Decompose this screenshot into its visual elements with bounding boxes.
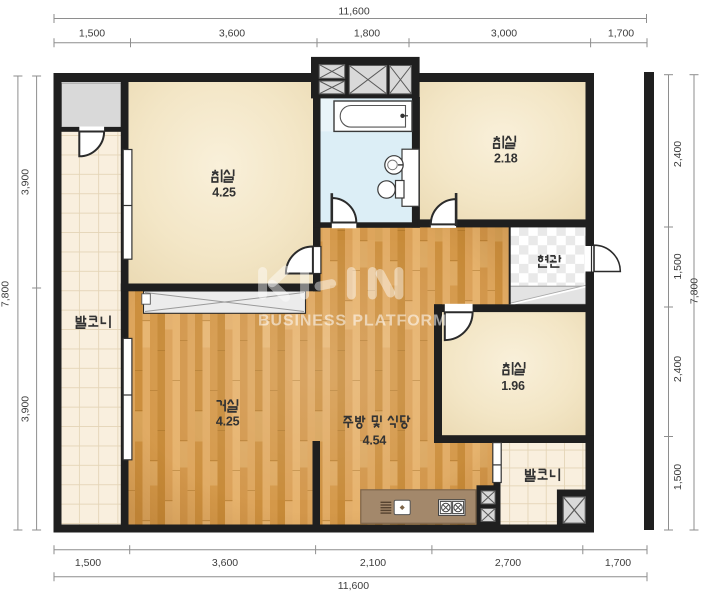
svg-text:4.25: 4.25 (212, 186, 236, 200)
svg-text:1,500: 1,500 (79, 28, 105, 40)
svg-text:BUSINESS PLATFORM: BUSINESS PLATFORM (258, 313, 447, 330)
svg-text:4.25: 4.25 (216, 414, 240, 428)
svg-text:1.96: 1.96 (501, 379, 525, 393)
svg-text:11,600: 11,600 (338, 6, 369, 18)
svg-text:11,600: 11,600 (338, 580, 369, 592)
svg-text:1,500: 1,500 (672, 464, 684, 490)
svg-text:1,500: 1,500 (75, 557, 101, 569)
svg-text:3,900: 3,900 (20, 169, 32, 195)
svg-text:2.18: 2.18 (494, 152, 518, 166)
svg-text:2,400: 2,400 (672, 356, 684, 382)
svg-text:3,900: 3,900 (20, 396, 32, 422)
svg-text:1,700: 1,700 (605, 557, 631, 569)
svg-text:7,800: 7,800 (0, 281, 12, 307)
svg-text:1,800: 1,800 (354, 28, 380, 40)
svg-text:3,600: 3,600 (219, 28, 245, 40)
svg-text:1,700: 1,700 (608, 28, 634, 40)
svg-text:2,700: 2,700 (495, 557, 521, 569)
svg-text:3,600: 3,600 (212, 557, 238, 569)
svg-text:7,800: 7,800 (689, 278, 701, 304)
svg-text:3,000: 3,000 (491, 28, 517, 40)
svg-text:1,500: 1,500 (672, 253, 684, 279)
svg-text:4.54: 4.54 (363, 434, 387, 448)
svg-text:2,400: 2,400 (672, 141, 684, 167)
svg-text:2,100: 2,100 (360, 557, 386, 569)
